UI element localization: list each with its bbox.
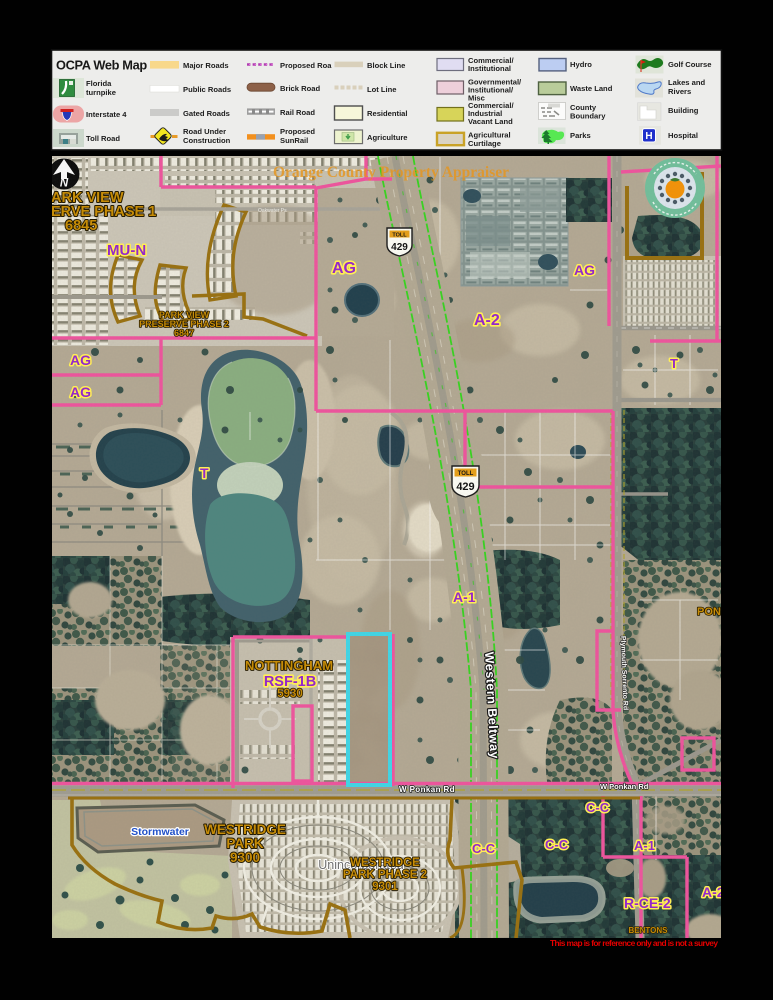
- svg-text:Rivers: Rivers: [668, 87, 691, 96]
- svg-text:C-C: C-C: [472, 841, 496, 856]
- svg-text:Hospital: Hospital: [668, 131, 698, 140]
- svg-text:Gated Roads: Gated Roads: [183, 109, 230, 118]
- svg-text:Interstate 4: Interstate 4: [86, 110, 127, 119]
- svg-text:AG: AG: [70, 384, 91, 400]
- svg-text:Florida: Florida: [86, 79, 112, 88]
- svg-text:OCPA Web Map: OCPA Web Map: [56, 58, 147, 73]
- svg-text:NOTTINGHAM: NOTTINGHAM: [245, 658, 333, 673]
- svg-text:A-2: A-2: [474, 312, 500, 329]
- svg-text:Boundary: Boundary: [570, 112, 606, 121]
- svg-text:T: T: [200, 465, 209, 481]
- svg-text:Road Under: Road Under: [183, 127, 226, 136]
- svg-text:Oakwater Ps: Oakwater Ps: [258, 208, 287, 214]
- svg-text:Golf Course: Golf Course: [668, 60, 711, 69]
- svg-text:Residential: Residential: [367, 109, 408, 118]
- svg-text:A-1: A-1: [634, 838, 655, 853]
- svg-text:Lakes and: Lakes and: [668, 78, 706, 87]
- svg-text:6847: 6847: [174, 328, 194, 338]
- svg-text:9301: 9301: [372, 881, 398, 893]
- svg-text:Rail Road: Rail Road: [280, 108, 315, 117]
- svg-text:Hydro: Hydro: [570, 60, 592, 69]
- svg-text:PON: PON: [697, 606, 721, 618]
- svg-text:Public Roads: Public Roads: [183, 85, 231, 94]
- svg-text:AG: AG: [332, 260, 356, 277]
- svg-text:Stormwater: Stormwater: [131, 826, 189, 838]
- svg-text:Institutional: Institutional: [468, 64, 511, 73]
- svg-text:H: H: [645, 131, 652, 142]
- svg-text:C-C: C-C: [586, 800, 610, 815]
- svg-text:A-1: A-1: [453, 589, 476, 605]
- svg-text:Proposed: Proposed: [280, 127, 315, 136]
- svg-text:6845: 6845: [65, 218, 97, 234]
- svg-text:MU-N: MU-N: [107, 242, 146, 259]
- svg-text:W Ponkan Rd: W Ponkan Rd: [399, 785, 455, 794]
- svg-text:Proposed Roa: Proposed Roa: [280, 61, 332, 70]
- svg-text:Block Line: Block Line: [367, 61, 405, 70]
- svg-text:WESTRIDGE: WESTRIDGE: [350, 857, 420, 869]
- svg-text:Brick Road: Brick Road: [280, 84, 320, 93]
- svg-text:Curtilage: Curtilage: [468, 139, 501, 148]
- svg-text:T: T: [670, 356, 678, 371]
- svg-text:WESTRIDGE: WESTRIDGE: [204, 822, 286, 837]
- svg-text:AG: AG: [574, 262, 595, 278]
- svg-text:Agriculture: Agriculture: [367, 133, 408, 142]
- svg-text:PARK PHASE 2: PARK PHASE 2: [343, 869, 427, 881]
- svg-text:Building: Building: [668, 106, 699, 115]
- svg-text:Waste Land: Waste Land: [570, 84, 613, 93]
- svg-text:BENTONS: BENTONS: [629, 926, 669, 935]
- svg-text:This map is for reference only: This map is for reference only and is no…: [550, 938, 718, 948]
- svg-text:Lot Line: Lot Line: [367, 85, 397, 94]
- svg-text:9300: 9300: [230, 850, 260, 865]
- svg-text:Toll Road: Toll Road: [86, 134, 120, 143]
- svg-text:Orange County Property Apprais: Orange County Property Appraiser: [273, 164, 509, 181]
- svg-text:PARK: PARK: [226, 836, 264, 851]
- svg-text:SunRail: SunRail: [280, 136, 308, 145]
- svg-text:R-CE-2: R-CE-2: [624, 895, 671, 911]
- svg-text:W Ponkan Rd: W Ponkan Rd: [600, 782, 649, 791]
- svg-text:Major Roads: Major Roads: [183, 61, 229, 70]
- svg-text:Vacant Land: Vacant Land: [468, 117, 513, 126]
- svg-text:Parks: Parks: [570, 131, 591, 140]
- svg-text:C-C: C-C: [545, 837, 569, 852]
- svg-text:turnpike: turnpike: [86, 88, 116, 97]
- svg-text:AG: AG: [70, 352, 91, 368]
- svg-text:Construction: Construction: [183, 136, 231, 145]
- svg-text:5930: 5930: [277, 688, 303, 700]
